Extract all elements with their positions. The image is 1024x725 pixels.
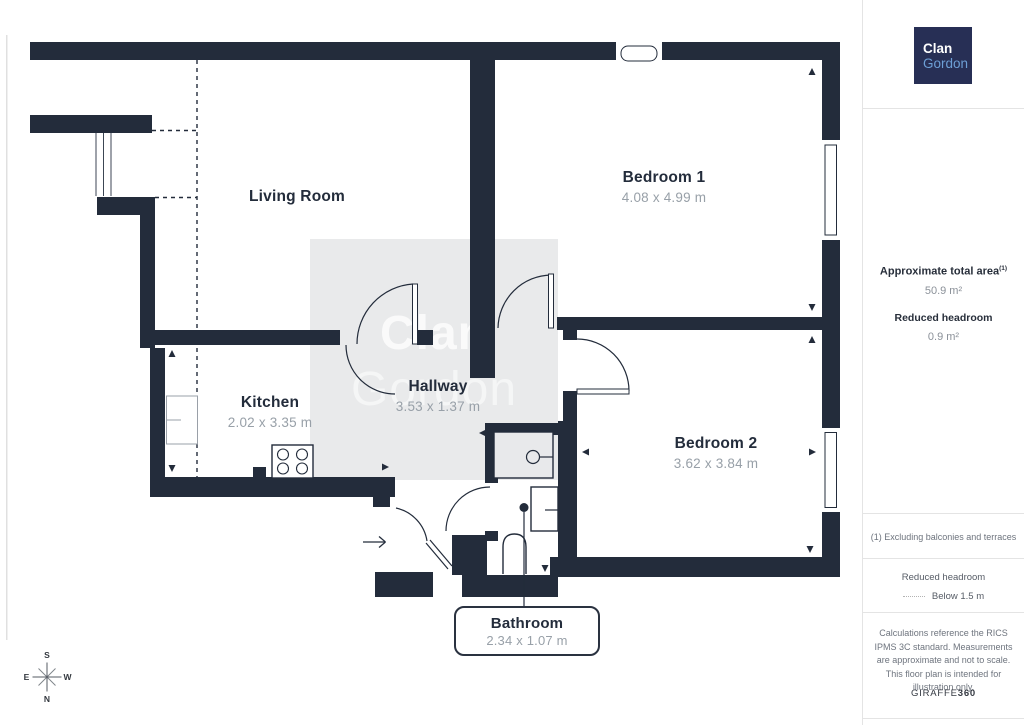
info-sidebar: Clan Gordon Approximate total area(1) 50… [862,0,1024,725]
room-dims: 3.53 x 1.37 m [396,399,480,414]
total-area-label-text: Approximate total area [880,266,999,278]
room-label-living-room: Living Room [249,188,345,206]
reduced-headroom-value: 0.9 m² [863,331,1024,343]
room-name: Living Room [249,188,345,206]
room-label-bedroom1: Bedroom 1 4.08 x 4.99 m [622,169,706,205]
door-bedroom2 [577,339,629,394]
area-summary: Approximate total area(1) 50.9 m² Reduce… [863,265,1024,343]
stove [272,445,313,478]
room-dims: 2.02 x 3.35 m [228,415,312,430]
door-bathroom [446,487,490,531]
brand-name: GIRAFFE [911,688,958,699]
logo-line1: Clan [923,41,972,56]
sink [531,487,558,531]
divider [863,513,1024,514]
room-label-hallway: Hallway 3.53 x 1.37 m [396,378,480,414]
shower [494,432,553,478]
room-name: Bedroom 1 [622,169,706,187]
room-name: Kitchen [228,394,312,412]
room-label-kitchen: Kitchen 2.02 x 3.35 m [228,394,312,430]
compass-south: S [44,650,50,660]
divider [863,558,1024,559]
compass-east: E [24,672,30,682]
logo-line2: Gordon [923,56,972,71]
room-label-bathroom-callout: Bathroom 2.34 x 1.07 m [454,606,600,656]
balcony-edge-line [6,35,8,640]
total-area-value: 50.9 m² [863,285,1024,297]
total-area-note-ref: (1) [999,265,1007,272]
disclaimer-text: Calculations reference the RICS IPMS 3C … [873,627,1014,695]
divider [863,108,1024,109]
divider [863,718,1024,719]
brand-suffix: 360 [958,688,976,699]
room-label-bedroom2: Bedroom 2 3.62 x 3.84 m [674,435,758,471]
legend-title: Reduced headroom [863,572,1024,583]
dashed-line-swatch [903,596,925,597]
compass-north: N [44,694,50,704]
room-name: Bathroom [491,615,563,632]
room-dims: 4.08 x 4.99 m [622,190,706,205]
legend-row: Below 1.5 m [863,591,1024,602]
legend-item-label: Below 1.5 m [932,591,984,602]
reduced-headroom-label: Reduced headroom [863,312,1024,324]
room-name: Hallway [396,378,480,396]
door-entrance [396,508,452,569]
divider [863,612,1024,613]
clan-gordon-logo: Clan Gordon [914,27,972,84]
room-dims: 2.34 x 1.07 m [486,633,567,648]
giraffe360-brand: GIRAFFE360 [863,688,1024,699]
compass: S N E W [24,650,73,704]
reduced-headroom-legend: Reduced headroom Below 1.5 m [863,572,1024,602]
entry-arrow-icon [363,537,386,548]
compass-west: W [63,672,72,682]
total-area-label: Approximate total area(1) [863,265,1024,278]
footnote: (1) Excluding balconies and terraces [863,532,1024,542]
kitchen-counter [167,396,198,444]
bathroom-point [520,503,529,512]
staircase [96,133,111,196]
toilet [503,534,526,574]
floor-plan-page: Clan Gordon [0,0,1024,725]
floor-plan-canvas: Clan Gordon [0,0,862,725]
room-name: Bedroom 2 [674,435,758,453]
room-dims: 3.62 x 3.84 m [674,456,758,471]
floor-plan: Clan Gordon [0,0,862,725]
